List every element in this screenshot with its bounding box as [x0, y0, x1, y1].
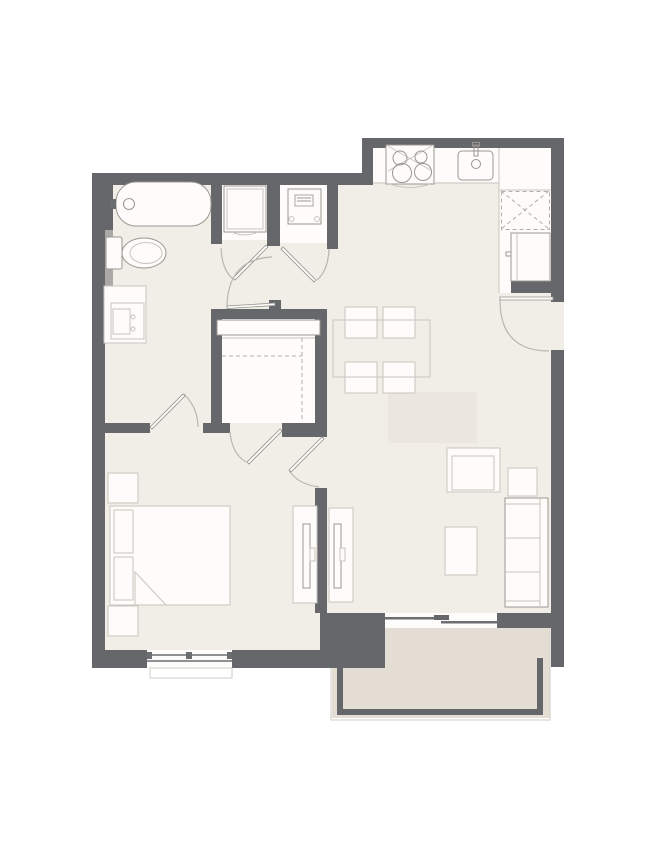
window-mullion — [186, 652, 192, 659]
sofa-icon — [505, 498, 548, 607]
wall-closet2-greatroom — [327, 185, 338, 249]
side-table-icon — [508, 468, 537, 496]
wall-foot-west — [203, 423, 230, 433]
window-mullion — [147, 652, 152, 659]
wall-right-upper — [551, 138, 564, 302]
floor-plan — [0, 0, 652, 844]
balcony-railing-icon — [337, 709, 543, 715]
dining-chair-icon — [383, 307, 415, 338]
nightstand-icon — [108, 606, 138, 636]
floor-plan-canvas — [0, 0, 652, 844]
tv-mount — [340, 548, 345, 561]
rug-icon — [388, 392, 477, 443]
bathtub-icon — [116, 182, 211, 226]
balcony-railing-icon — [537, 658, 543, 715]
water-heater-icon — [288, 189, 321, 224]
wall-step-block — [320, 613, 385, 668]
armchair-icon — [447, 448, 500, 492]
wall-fridge-stub — [511, 281, 551, 293]
tv-mount — [310, 548, 315, 561]
closet-shelf-icon — [217, 320, 320, 335]
tub-spout-icon — [110, 199, 116, 209]
entry-door-icon — [500, 297, 553, 300]
wall-foot-east — [282, 423, 325, 437]
slider-lock-block — [434, 615, 449, 620]
dining-chair-icon — [345, 307, 377, 338]
slider-panel — [441, 621, 499, 624]
wall-bedroom-top — [92, 423, 150, 433]
wall-closet1-closet2 — [267, 185, 280, 246]
pillow-icon — [114, 510, 133, 553]
nightstand-icon — [108, 473, 138, 503]
wall-bottom-living — [497, 613, 564, 628]
toilet-tank-icon — [106, 237, 122, 269]
washer-unit-icon — [224, 186, 266, 232]
window-sill — [150, 668, 232, 678]
pillow-icon — [114, 557, 133, 600]
kitchen-sink-icon — [458, 151, 493, 180]
coffee-table-icon — [445, 527, 477, 575]
wardrobe-wall-top — [211, 309, 327, 319]
entry-threshold — [551, 302, 564, 350]
wall-bath-closet1 — [211, 185, 222, 244]
wall-bottom-bedroom-west — [92, 650, 147, 668]
tv-icon — [303, 524, 310, 588]
window-mullion — [227, 652, 232, 659]
wall-left — [92, 173, 105, 668]
